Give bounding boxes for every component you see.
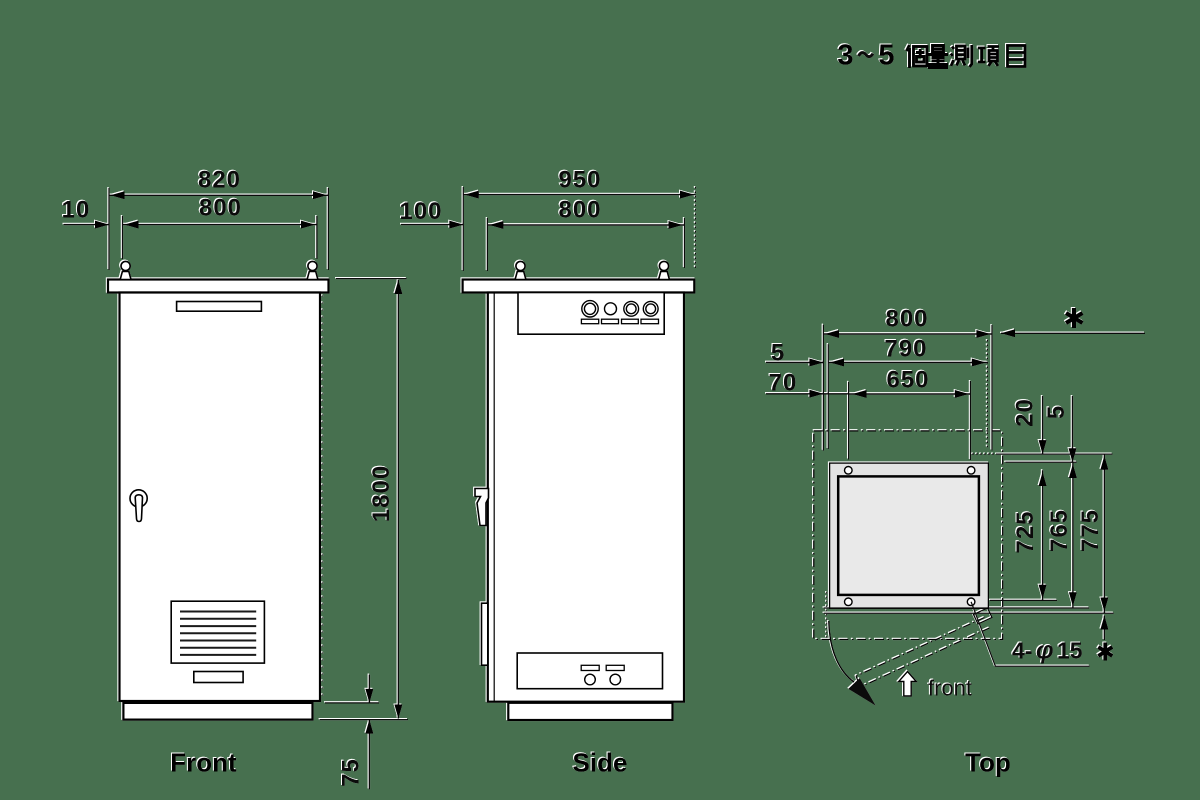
svg-text:75: 75 — [338, 758, 365, 787]
svg-text:1800: 1800 — [368, 465, 395, 522]
svg-text:775: 775 — [1077, 509, 1104, 552]
svg-text:20: 20 — [1012, 398, 1039, 427]
svg-text:820: 820 — [198, 167, 241, 194]
svg-text:790: 790 — [884, 336, 927, 363]
svg-text:650: 650 — [886, 367, 929, 394]
svg-text:800: 800 — [558, 197, 601, 224]
svg-text:15: 15 — [1057, 638, 1083, 664]
svg-text:Top: Top — [965, 748, 1011, 778]
svg-text:100: 100 — [399, 198, 442, 225]
svg-text:10: 10 — [62, 196, 91, 223]
svg-text:3: 3 — [837, 40, 853, 72]
svg-text:5: 5 — [771, 340, 785, 367]
svg-text:5: 5 — [1043, 405, 1070, 419]
svg-text:front: front — [928, 676, 972, 701]
svg-text:800: 800 — [885, 305, 928, 332]
svg-text:765: 765 — [1046, 509, 1073, 552]
svg-text:800: 800 — [199, 195, 242, 222]
svg-text:70: 70 — [769, 370, 798, 397]
svg-text:Front: Front — [170, 748, 237, 778]
svg-text:Side: Side — [573, 748, 628, 778]
svg-text:φ: φ — [1036, 637, 1054, 665]
svg-text:4-: 4- — [1012, 638, 1032, 664]
svg-text:950: 950 — [558, 166, 601, 193]
svg-text:5: 5 — [878, 40, 894, 72]
svg-text:725: 725 — [1012, 510, 1039, 553]
